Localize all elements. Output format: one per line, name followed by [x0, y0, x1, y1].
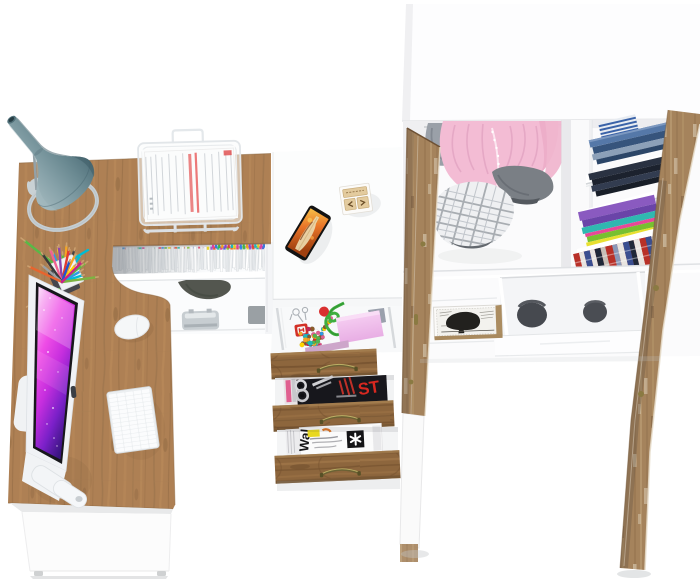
- svg-text:ST: ST: [357, 377, 382, 399]
